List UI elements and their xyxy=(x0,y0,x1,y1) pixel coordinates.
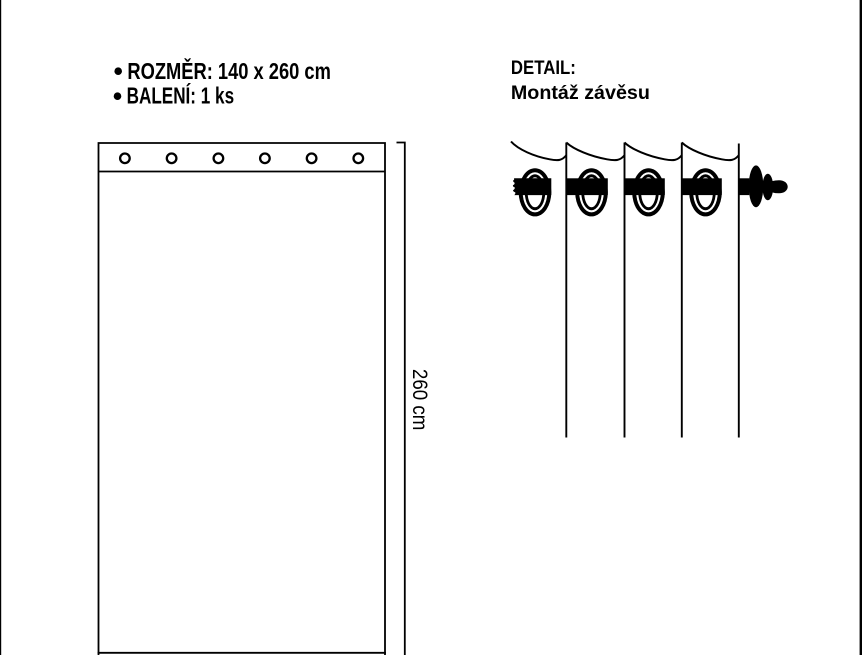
svg-text:260 cm: 260 cm xyxy=(408,369,431,431)
svg-text:Montáž závěsu: Montáž závěsu xyxy=(511,83,650,104)
svg-text:DETAIL:: DETAIL: xyxy=(511,58,576,79)
svg-text:BALENÍ: 1 ks: BALENÍ: 1 ks xyxy=(127,82,235,109)
svg-text:ROZMĚR: 140 x 260 cm: ROZMĚR: 140 x 260 cm xyxy=(127,57,331,84)
